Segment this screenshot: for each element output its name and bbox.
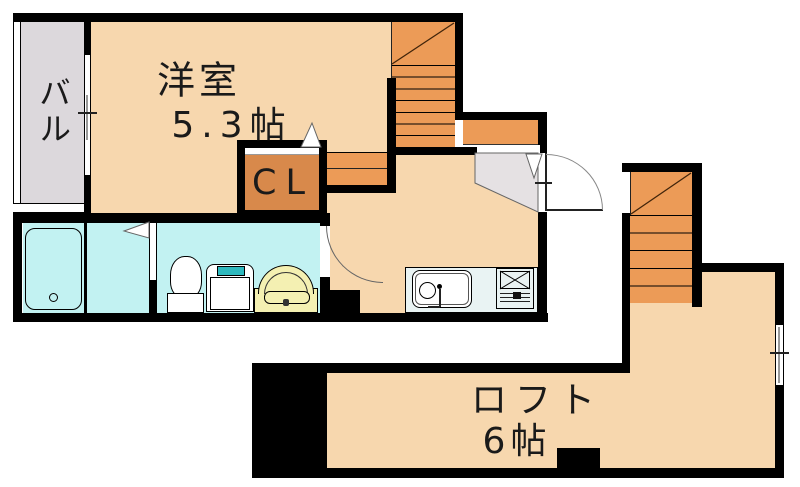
loft-stairs-wall-left (622, 213, 630, 373)
staircase-upper-landing (463, 120, 540, 145)
loft-wall-topright (698, 263, 784, 272)
staircase-landing-diagonal (391, 22, 455, 65)
entry-wall-right-lower (538, 212, 547, 322)
balcony-railing-bottom (13, 203, 84, 213)
bathtub-drain (49, 293, 58, 302)
staircase-steps (391, 65, 455, 147)
entrance-door-swing (546, 154, 603, 210)
bath-door-wall-lower (149, 280, 157, 313)
kitchen-sink-drain (419, 282, 436, 299)
entrance-door-tick (535, 182, 552, 184)
outer-wall-top (13, 13, 463, 22)
floor-plan: 洋室 5.3帖 バル CL ロフト 6帖 (0, 0, 800, 487)
gas-stove-handle (513, 292, 521, 299)
outer-wall-left (13, 213, 22, 322)
balcony-railing-left (13, 22, 21, 213)
loft-floor-upper (702, 272, 775, 373)
outer-wall-bottom-1f (13, 313, 548, 322)
kitchen-faucet-foot (428, 306, 440, 308)
gas-stove-top (500, 271, 530, 289)
entry-wall-top (455, 112, 547, 120)
loft-corner-block (252, 363, 327, 478)
kitchen-corner-block (322, 290, 360, 322)
main-room-size: 5.3帖 (171, 96, 292, 148)
genkan-door-marker (525, 153, 543, 179)
balcony-label: バル (30, 76, 76, 148)
gas-stove-grill-line3 (500, 301, 530, 302)
bathroom-door (149, 223, 157, 280)
closet-door-marker (300, 122, 322, 148)
loft-staircase-landing-diagonal (630, 172, 692, 215)
loft-size: 6帖 (483, 412, 552, 464)
bathroom-door-marker (123, 221, 150, 239)
loft-stairs-wall-right (692, 163, 702, 307)
closet-label: CL (252, 163, 314, 203)
washbasin-drain (283, 299, 289, 306)
staircase-lower-step-line (327, 168, 390, 169)
closet-sliding-door (245, 148, 319, 155)
loft-window-sash (778, 327, 780, 383)
hall-steps-wall (327, 185, 396, 193)
washing-machine-tub (210, 277, 250, 310)
balcony-window-sash (86, 95, 88, 140)
loft-window-tick (770, 352, 789, 354)
toilet-bowl (170, 256, 202, 298)
kitchen-faucet-stem (439, 289, 441, 307)
toilet-tank (167, 293, 204, 313)
loft-bottom-notch (557, 448, 600, 478)
balcony-window-tick (78, 112, 97, 114)
loft-staircase-steps (630, 215, 692, 303)
bath-divider-wall (84, 223, 87, 313)
washing-machine-panel (217, 266, 245, 276)
loft-stairs-wall-top (622, 163, 702, 172)
stairs-side-wall (387, 78, 396, 192)
loft-wall-bottom (252, 468, 784, 478)
under-stairs-wall (387, 147, 477, 155)
stairwell-wall-right (455, 13, 463, 120)
sanitary-wall-band (13, 213, 330, 223)
loft-floor-stairfoot (630, 303, 702, 373)
